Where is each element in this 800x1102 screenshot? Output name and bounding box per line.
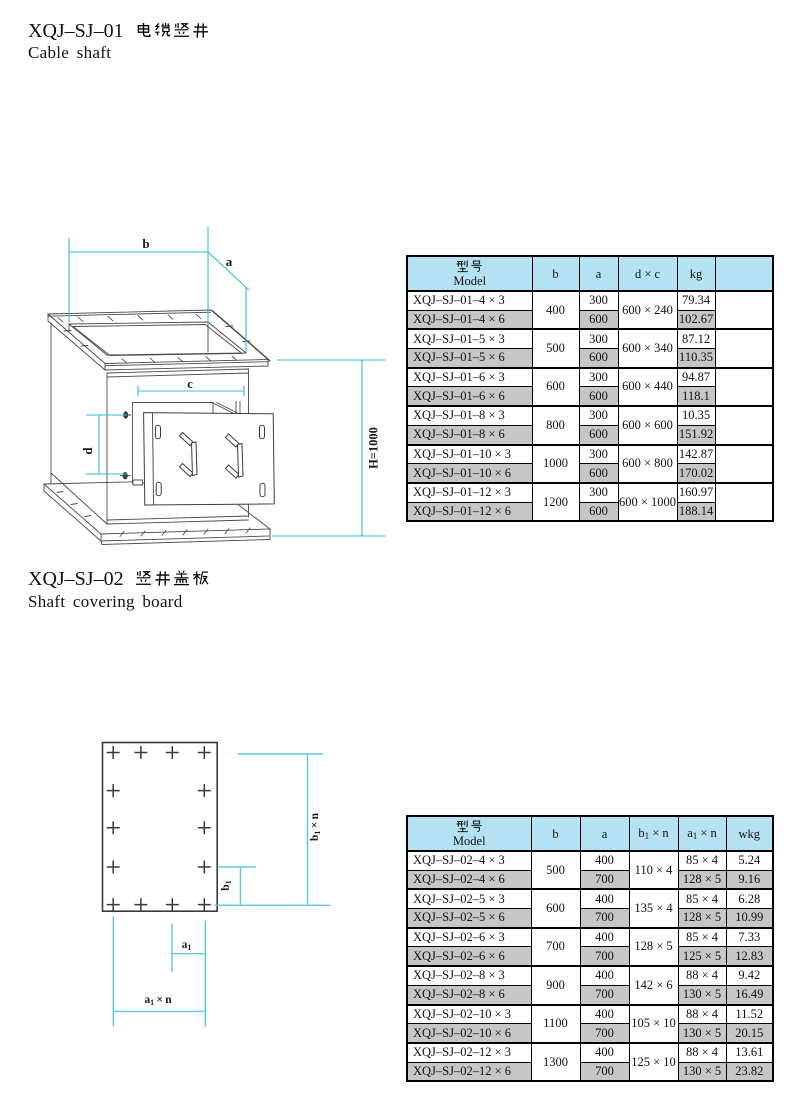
svg-text:d: d [80,447,95,455]
svg-text:a1 × n: a1 × n [144,994,172,1007]
svg-text:b: b [142,236,149,251]
svg-text:a: a [226,254,233,269]
svg-text:c: c [187,376,193,391]
svg-text:b1 × n: b1 × n [309,812,322,841]
svg-text:H=1000: H=1000 [367,427,381,469]
svg-text:b1: b1 [220,880,233,890]
svg-text:a1: a1 [182,939,192,952]
